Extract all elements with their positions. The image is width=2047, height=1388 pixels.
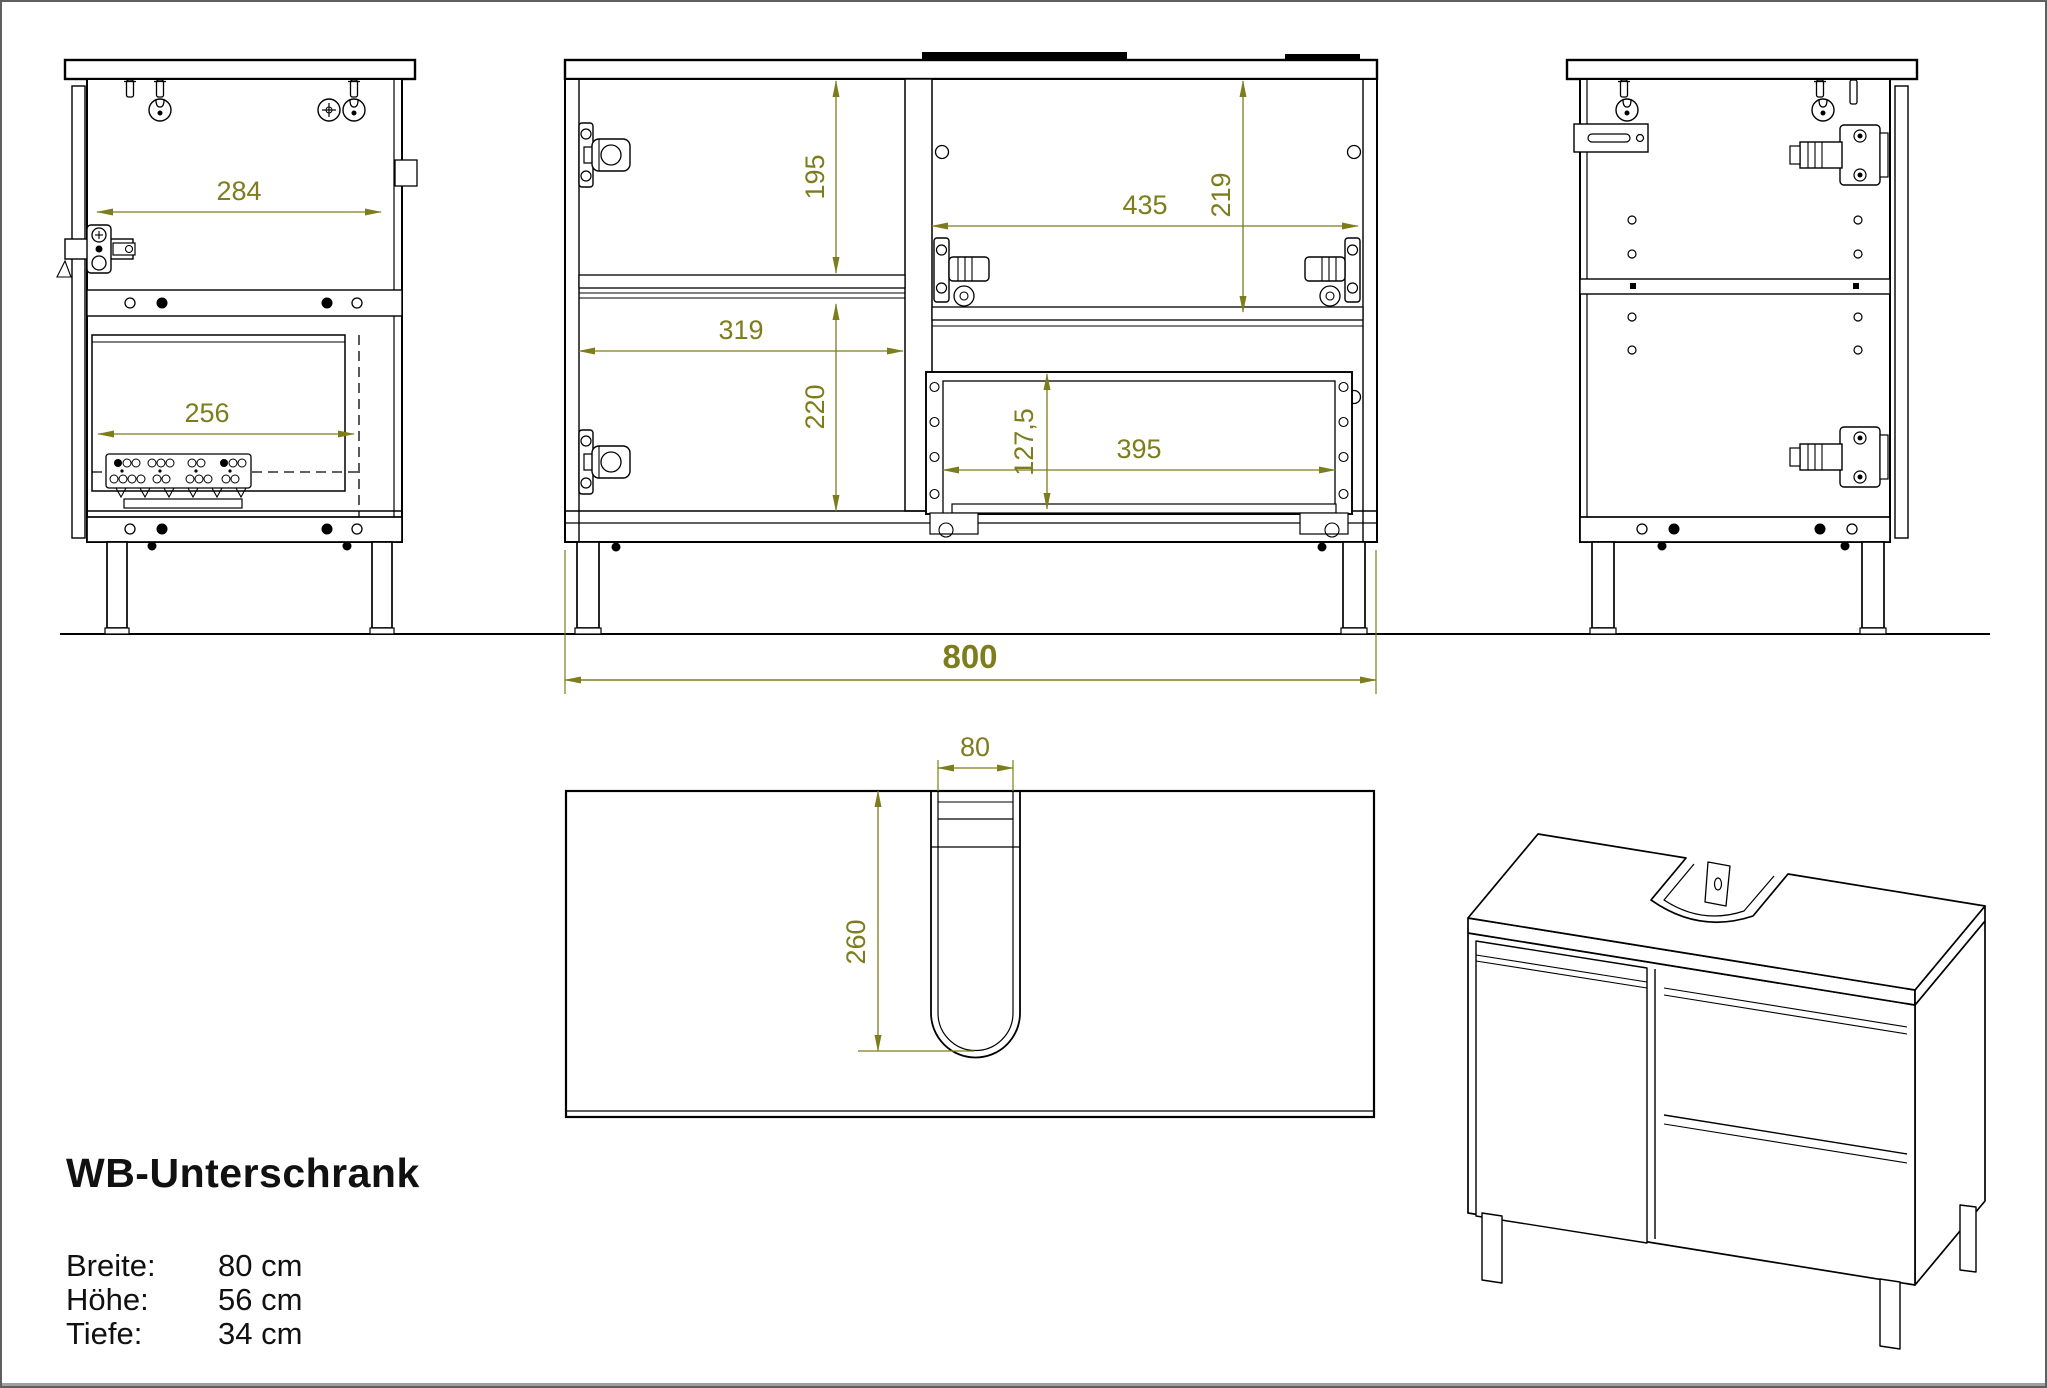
door-panel-edge <box>72 86 85 538</box>
leg <box>107 542 127 628</box>
leg <box>1592 542 1614 628</box>
left-side-view <box>57 60 417 634</box>
spec-label: Tiefe: <box>66 1317 218 1351</box>
svg-text:80: 80 <box>960 732 990 762</box>
drawing-title: WB-Unterschrank <box>66 1150 420 1197</box>
iso-leg <box>1880 1279 1900 1349</box>
leg <box>1343 542 1365 628</box>
svg-text:284: 284 <box>216 176 261 206</box>
iso-view <box>1468 834 1985 1349</box>
mid-rail <box>1580 279 1890 294</box>
spec-list: Breite: 80 cm Höhe: 56 cm Tiefe: 34 cm <box>66 1249 420 1351</box>
top-panel-outline <box>566 791 1374 1117</box>
spec-value: 34 cm <box>218 1317 302 1351</box>
wall-bracket <box>1574 124 1648 152</box>
svg-text:195: 195 <box>800 154 830 199</box>
spec-row-tiefe: Tiefe: 34 cm <box>66 1317 420 1351</box>
svg-text:435: 435 <box>1122 190 1167 220</box>
svg-text:260: 260 <box>841 919 871 964</box>
top-panel <box>1567 60 1917 79</box>
plan-view <box>566 791 1374 1117</box>
right-side-view <box>1567 60 1917 634</box>
bottom-rail <box>1580 517 1890 542</box>
svg-text:319: 319 <box>718 315 763 345</box>
svg-text:220: 220 <box>800 384 830 429</box>
top-panel <box>65 60 415 79</box>
spec-row-breite: Breite: 80 cm <box>66 1249 420 1283</box>
drawer-rail <box>932 307 1363 320</box>
dim-cutout-width-80: 80 <box>938 732 1013 791</box>
svg-text:127,5: 127,5 <box>1009 408 1039 476</box>
shelf <box>579 275 905 288</box>
leg <box>372 542 392 628</box>
dim-total-width-800: 800 <box>565 550 1376 694</box>
iso-leg <box>1482 1213 1502 1283</box>
iso-siphon-tab <box>1705 862 1730 906</box>
svg-text:395: 395 <box>1116 434 1161 464</box>
bottom-rail <box>87 517 402 542</box>
front-view <box>565 52 1377 634</box>
spec-label: Höhe: <box>66 1283 218 1317</box>
leg <box>577 542 599 628</box>
mid-rail <box>87 290 402 316</box>
top-panel <box>565 60 1377 79</box>
svg-text:219: 219 <box>1206 172 1236 217</box>
title-block: WB-Unterschrank Breite: 80 cm Höhe: 56 c… <box>66 1150 420 1351</box>
iso-leg <box>1960 1205 1976 1272</box>
drawing-sheet: 284 256 <box>0 0 2047 1388</box>
spec-label: Breite: <box>66 1249 218 1283</box>
svg-text:256: 256 <box>184 398 229 428</box>
iso-door <box>1476 941 1647 1243</box>
leg <box>1862 542 1884 628</box>
spec-value: 80 cm <box>218 1249 302 1283</box>
spec-row-hoehe: Höhe: 56 cm <box>66 1283 420 1317</box>
svg-text:800: 800 <box>942 638 997 675</box>
drawer-slide-plate <box>106 454 251 508</box>
door-panel-edge <box>1895 86 1908 538</box>
spec-value: 56 cm <box>218 1283 302 1317</box>
